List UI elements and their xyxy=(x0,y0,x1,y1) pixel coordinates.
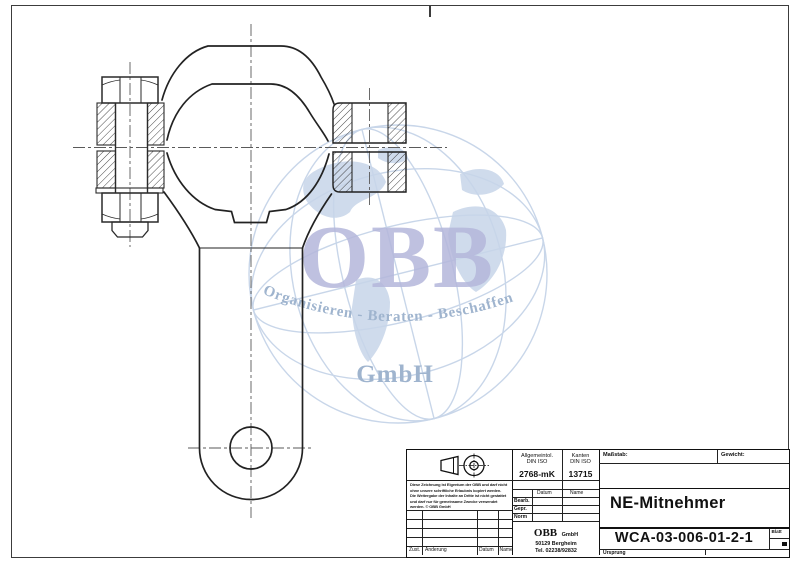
disclaimer-text: Diese Zeichnung ist Eigentum der OBB und… xyxy=(410,482,510,510)
first-angle-projection-icon xyxy=(437,453,499,478)
company-suffix: GmbH xyxy=(562,532,579,538)
general-tolerance-header: Allgemeintol. DIN ISO xyxy=(512,453,562,466)
clamp-body xyxy=(162,46,334,248)
approval-col-name: Name xyxy=(570,491,583,496)
weight-label: Gewicht: xyxy=(721,453,745,458)
revision-col-zust: Zust. xyxy=(409,548,420,553)
revision-col-aenderung: Änderung xyxy=(425,548,447,553)
company-name: OBB xyxy=(534,527,557,539)
approval-row-gepr: Gepr. xyxy=(514,507,527,512)
revision-col-name: Name xyxy=(500,548,513,553)
drawing-number: WCA-03-006-01-2-1 xyxy=(599,530,769,546)
scale-label: Maßstab: xyxy=(603,453,628,458)
company-address: 50129 Bergheim xyxy=(513,541,599,548)
sheet-marker xyxy=(782,542,787,546)
edges-header: Kanten DIN ISO xyxy=(562,453,599,466)
approval-row-bearb: Bearb. xyxy=(514,499,530,504)
company-block: OBB GmbH 50129 Bergheim Tel. 02238/92832 xyxy=(513,523,599,554)
centerlines xyxy=(73,24,447,518)
approval-col-datum: Datum xyxy=(537,491,552,496)
origin-label: Ursprung xyxy=(603,551,626,556)
general-tolerance-value: 2768-mK xyxy=(512,469,562,479)
approval-row-norm: Norm xyxy=(514,515,527,520)
part-title: NE-Mitnehmer xyxy=(610,494,725,513)
edges-value: 13715 xyxy=(562,469,599,479)
title-block: Diese Zeichnung ist Eigentum der OBB und… xyxy=(406,449,790,558)
revision-col-datum: Datum xyxy=(479,548,494,553)
company-phone: Tel. 02238/92832 xyxy=(513,548,599,555)
sheet-label: Blatt xyxy=(772,529,782,534)
